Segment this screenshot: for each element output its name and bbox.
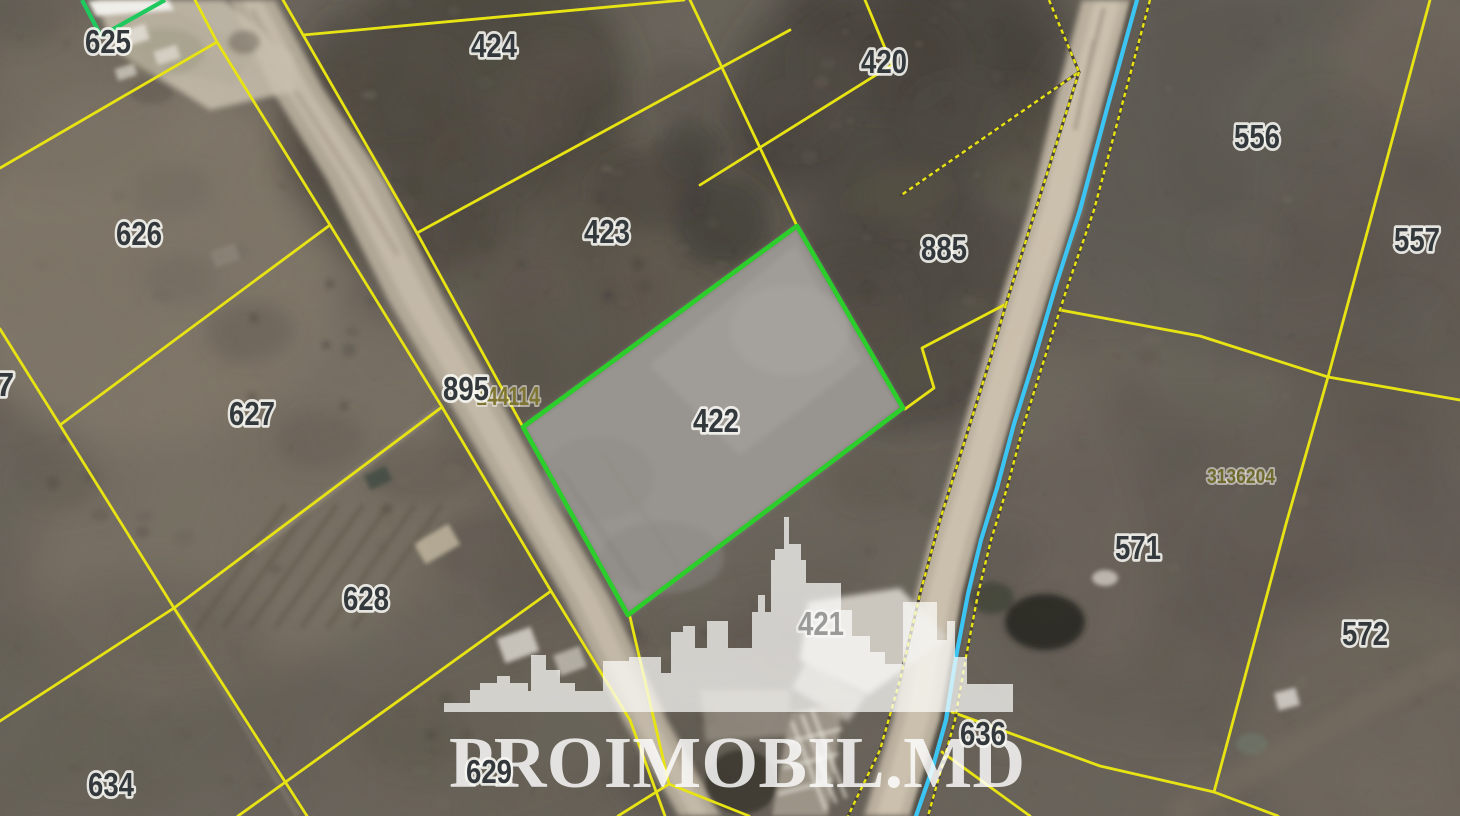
svg-text:885: 885 bbox=[921, 230, 967, 267]
svg-text:636: 636 bbox=[960, 715, 1006, 752]
svg-text:556: 556 bbox=[1234, 118, 1280, 155]
svg-text:424: 424 bbox=[471, 27, 518, 64]
svg-text:421: 421 bbox=[798, 605, 844, 642]
svg-text:625: 625 bbox=[85, 23, 131, 60]
svg-text:422: 422 bbox=[693, 402, 739, 439]
svg-text:3136204: 3136204 bbox=[1207, 466, 1276, 488]
svg-text:557: 557 bbox=[1394, 221, 1440, 258]
svg-text:571: 571 bbox=[1115, 529, 1161, 566]
svg-text:634: 634 bbox=[88, 766, 135, 803]
svg-text:PROIMOBIL.MD: PROIMOBIL.MD bbox=[449, 722, 1025, 803]
svg-text:895: 895 bbox=[443, 370, 489, 407]
svg-text:628: 628 bbox=[343, 580, 389, 617]
svg-text:7: 7 bbox=[0, 366, 14, 403]
svg-text:626: 626 bbox=[116, 215, 162, 252]
svg-text:572: 572 bbox=[1342, 615, 1388, 652]
svg-text:423: 423 bbox=[584, 213, 630, 250]
svg-text:629: 629 bbox=[466, 753, 512, 790]
svg-text:420: 420 bbox=[861, 43, 907, 80]
svg-text:627: 627 bbox=[229, 395, 275, 432]
